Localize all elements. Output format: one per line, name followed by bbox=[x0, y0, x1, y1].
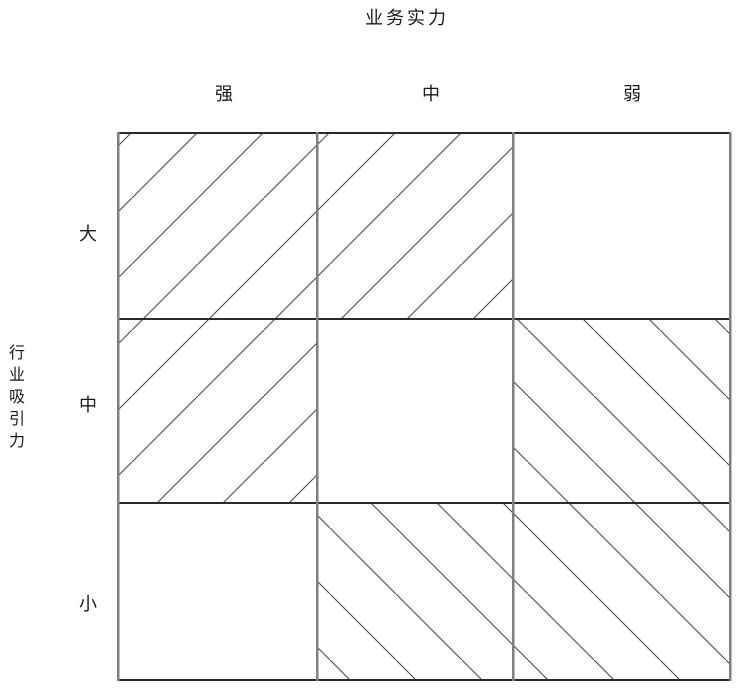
matrix-cell-r3c3 bbox=[513, 503, 730, 680]
matrix-cell-r1c2 bbox=[317, 133, 513, 319]
matrix-cell-r2c2 bbox=[317, 319, 513, 503]
matrix-cells bbox=[118, 133, 730, 680]
matrix-cell-r3c1 bbox=[118, 503, 317, 680]
matrix-cell-r2c3 bbox=[513, 319, 730, 503]
matrix-grid bbox=[0, 0, 747, 688]
matrix-cell-r3c2 bbox=[317, 503, 513, 680]
matrix-cell-r1c1 bbox=[118, 133, 317, 319]
ge-matrix-diagram: 业务实力 强 中 弱 行业吸引力 大 中 小 bbox=[0, 0, 747, 688]
matrix-cell-r2c1 bbox=[118, 319, 317, 503]
matrix-cell-r1c3 bbox=[513, 133, 730, 319]
